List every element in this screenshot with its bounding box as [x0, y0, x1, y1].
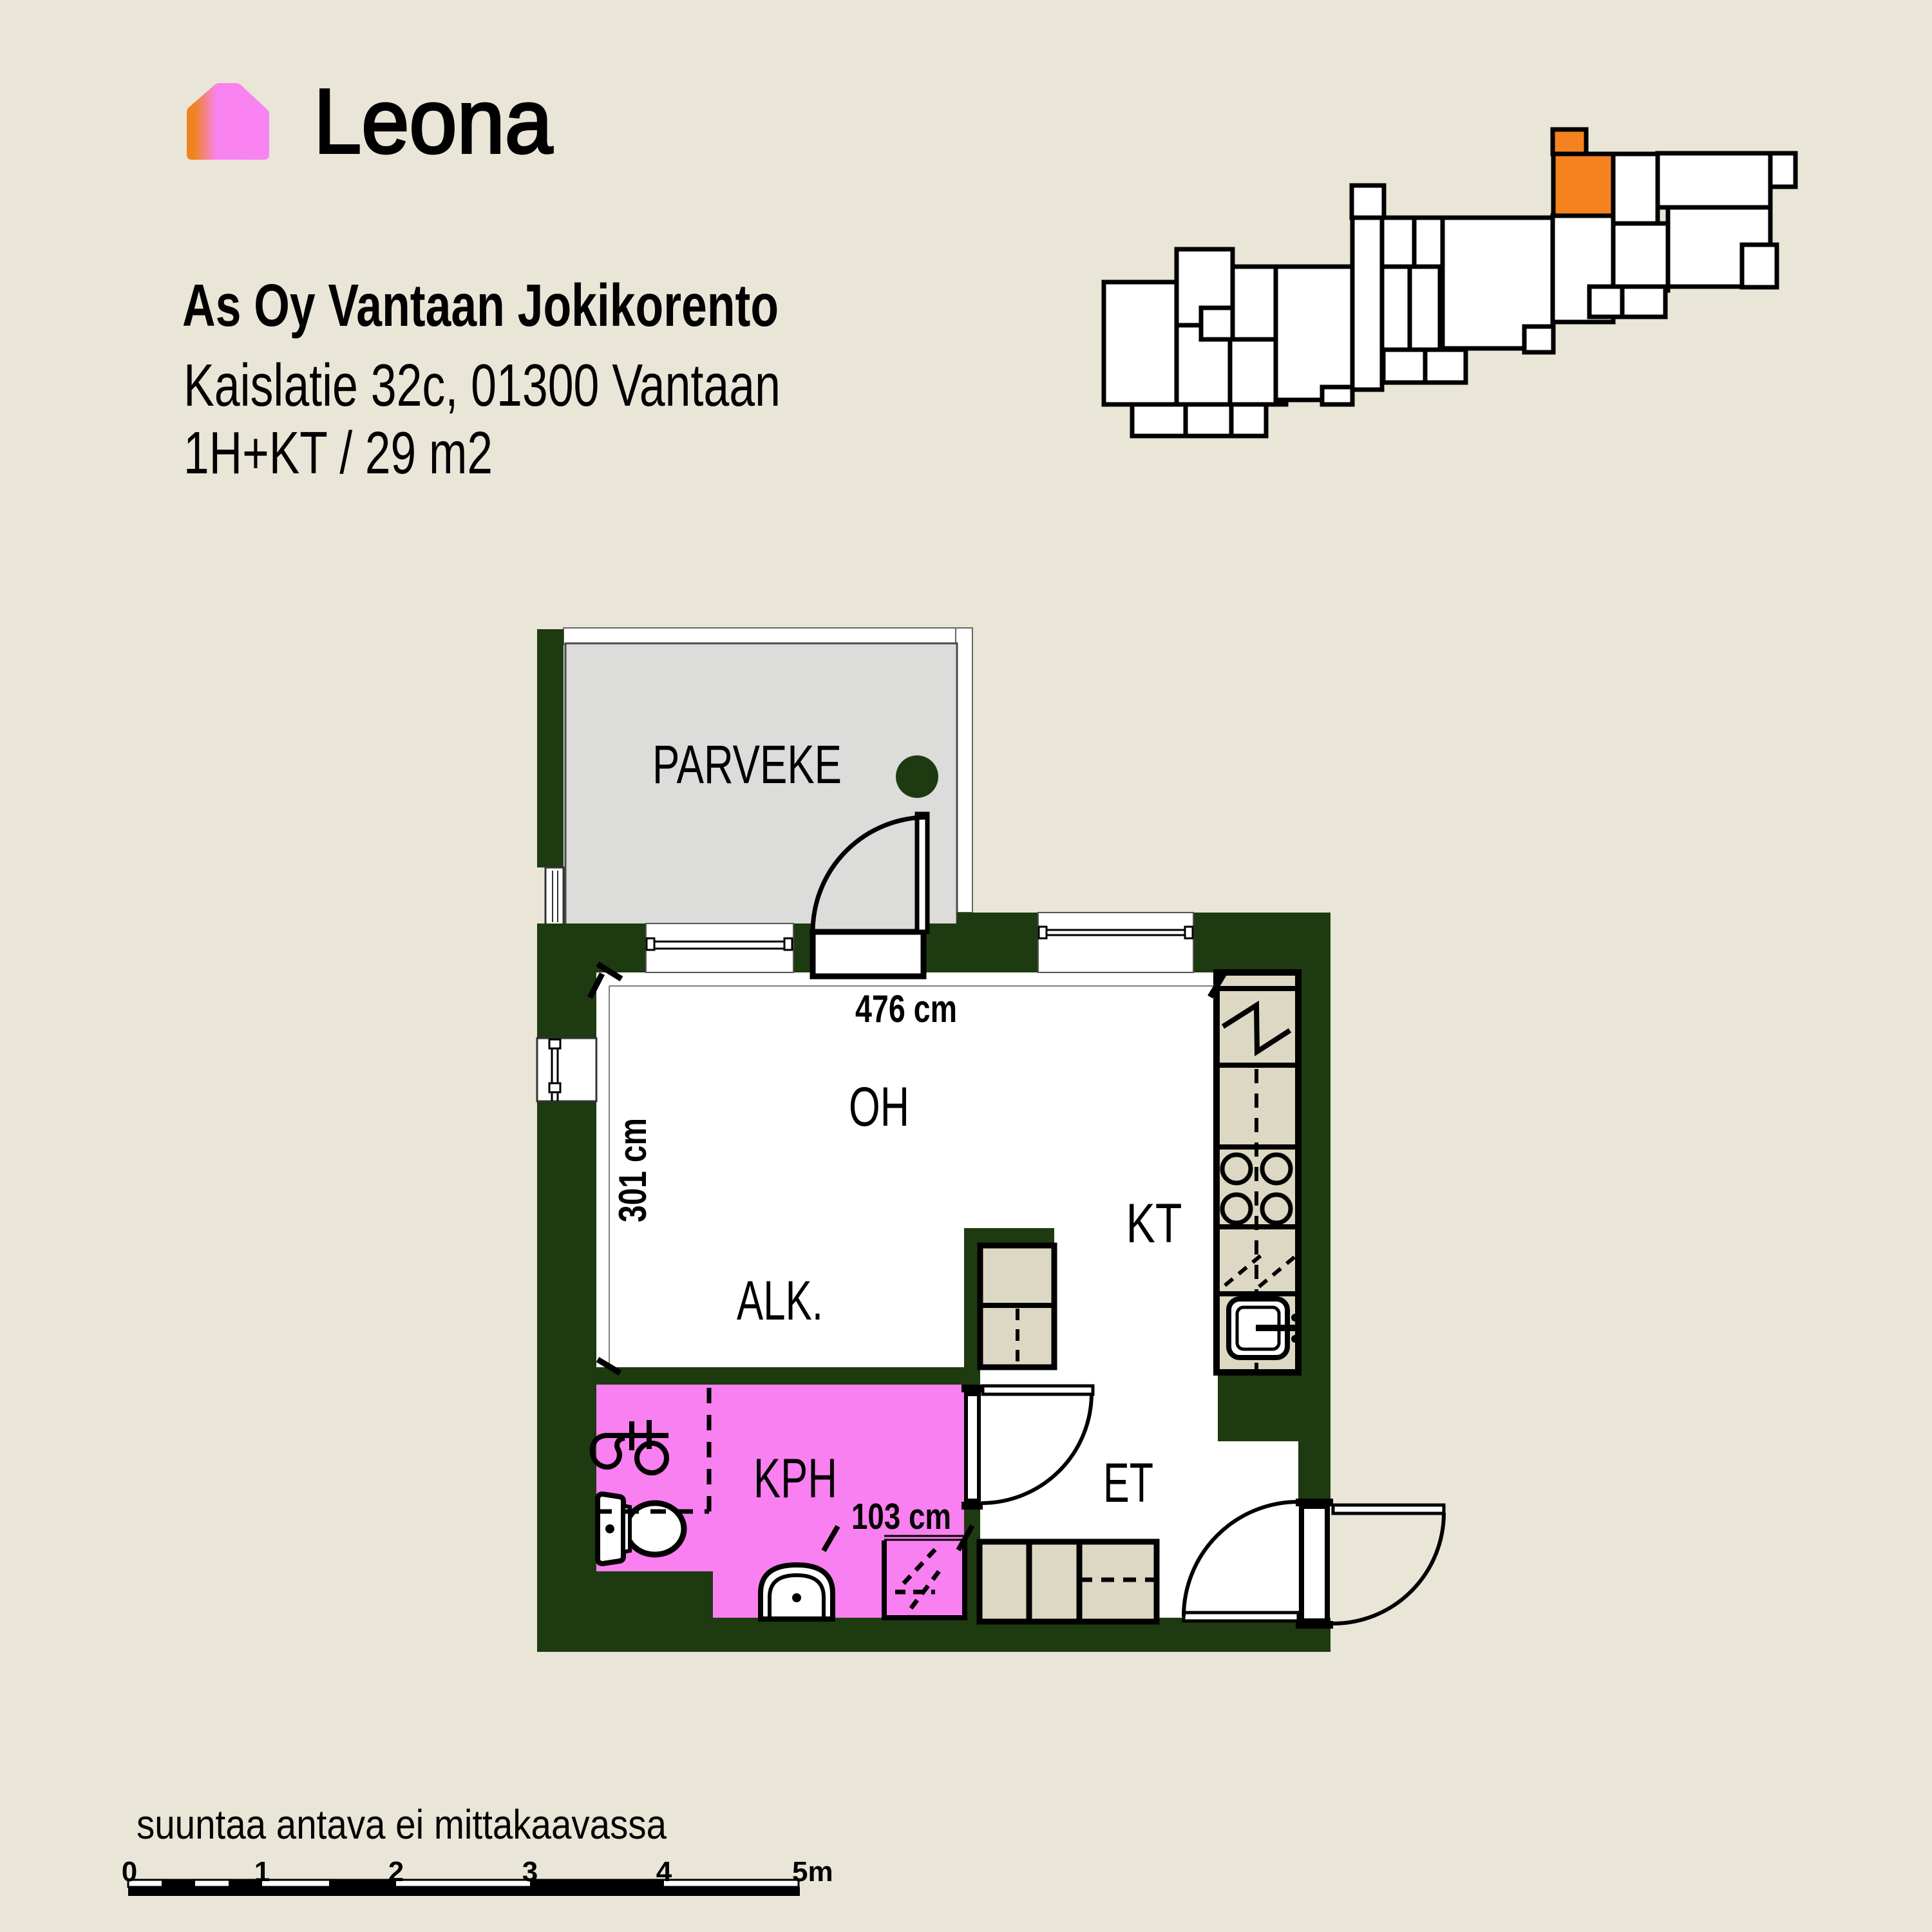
svg-text:As Oy Vantaan Jokikorento: As Oy Vantaan Jokikorento — [182, 272, 779, 339]
svg-text:1: 1 — [254, 1856, 270, 1888]
svg-text:OH: OH — [849, 1076, 909, 1138]
svg-text:ET: ET — [1103, 1452, 1153, 1514]
svg-text:103 cm: 103 cm — [851, 1496, 951, 1537]
svg-text:Kaislatie 32c, 01300 Vantaan: Kaislatie 32c, 01300 Vantaan — [184, 352, 781, 419]
svg-text:5m: 5m — [792, 1856, 833, 1888]
svg-text:0: 0 — [122, 1856, 137, 1888]
svg-text:4: 4 — [656, 1856, 672, 1888]
svg-text:KT: KT — [1126, 1193, 1182, 1255]
svg-text:suuntaa antava ei mittakaavass: suuntaa antava ei mittakaavassa — [137, 1801, 667, 1848]
svg-text:PARVEKE: PARVEKE — [652, 734, 842, 795]
svg-text:476 cm: 476 cm — [855, 987, 957, 1030]
svg-text:KPH: KPH — [753, 1448, 837, 1510]
svg-text:1H+KT / 29 m2: 1H+KT / 29 m2 — [184, 419, 493, 486]
svg-text:Leona: Leona — [314, 70, 553, 173]
svg-text:3: 3 — [522, 1856, 538, 1888]
svg-text:301 cm: 301 cm — [611, 1118, 654, 1222]
svg-text:2: 2 — [388, 1856, 404, 1888]
svg-text:ALK.: ALK. — [737, 1270, 823, 1332]
